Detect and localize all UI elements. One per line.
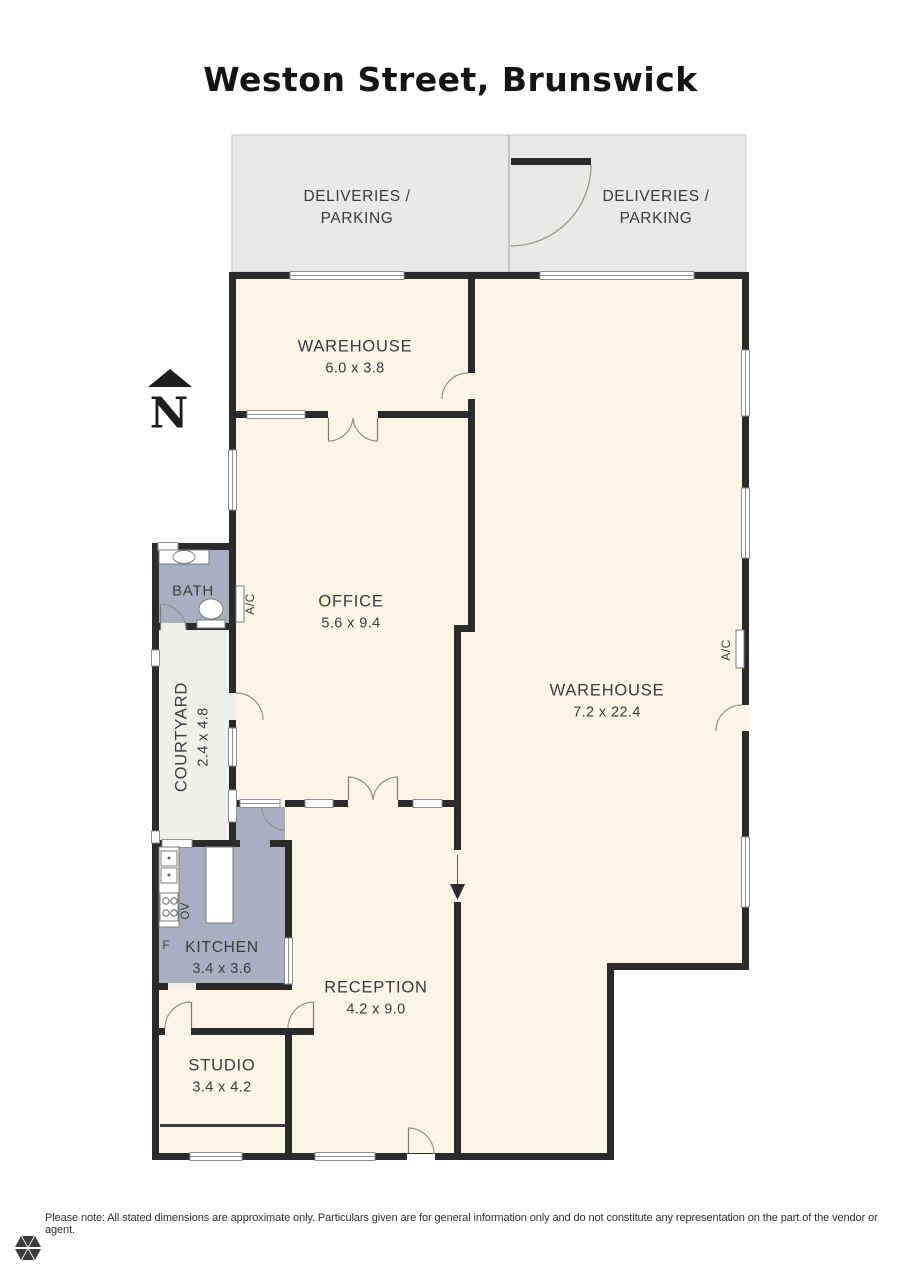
window [540,272,694,280]
ac-unit-icon [736,630,744,668]
floor-plan-drawing [0,0,901,1279]
disclaimer-text: Please note: All stated dimensions are a… [45,1212,901,1236]
window [247,411,305,419]
north-label: N [150,389,188,438]
window [152,650,160,666]
window [413,800,442,808]
outdoor-label-deliveries-right: DELIVERIES / PARKING [602,186,709,230]
window [162,840,192,848]
cooktop-icon [160,893,178,921]
window [229,728,237,766]
studio-joinery-line [160,1124,285,1127]
window [315,1153,375,1161]
north-arrow-icon [148,369,192,387]
ac-label-warehouse: A/C [719,639,733,661]
oven-label: OV [180,902,192,919]
toilet-base [197,620,225,628]
window [152,831,160,843]
window [158,543,178,551]
window [290,272,404,280]
sink-icon [173,551,195,564]
toilet-icon [199,599,223,619]
window [742,488,750,558]
window [742,837,750,907]
window [229,450,237,510]
room-label-courtyard: COURTYARD 2.4 x 4.8 [173,682,212,792]
room-label-warehouse-main: WAREHOUSE 7.2 x 22.4 [550,682,665,721]
room-label-office: OFFICE 5.6 x 9.4 [318,593,383,632]
room-label-kitchen: KITCHEN 3.4 x 3.6 [185,939,259,977]
window [305,800,333,808]
window [285,938,293,984]
entry-nook-floor [236,807,285,840]
fridge-label: F [162,940,169,952]
ac-label-bath: A/C [243,593,257,615]
floor-plan-page: Weston Street, Brunswick [0,0,901,1279]
window [240,800,280,808]
agency-logo-icon [15,1236,41,1260]
window [229,790,237,822]
room-label-studio: STUDIO 3.4 x 4.2 [188,1057,255,1096]
gate-leaf [511,158,591,165]
island-bench [206,847,233,923]
window [190,1153,242,1161]
outdoor-label-deliveries-left: DELIVERIES / PARKING [303,186,410,230]
room-label-reception: RECEPTION 4.2 x 9.0 [324,979,427,1018]
window [742,350,750,416]
room-label-bath: BATH [172,583,214,600]
room-label-warehouse-small: WAREHOUSE 6.0 x 3.8 [298,338,413,377]
